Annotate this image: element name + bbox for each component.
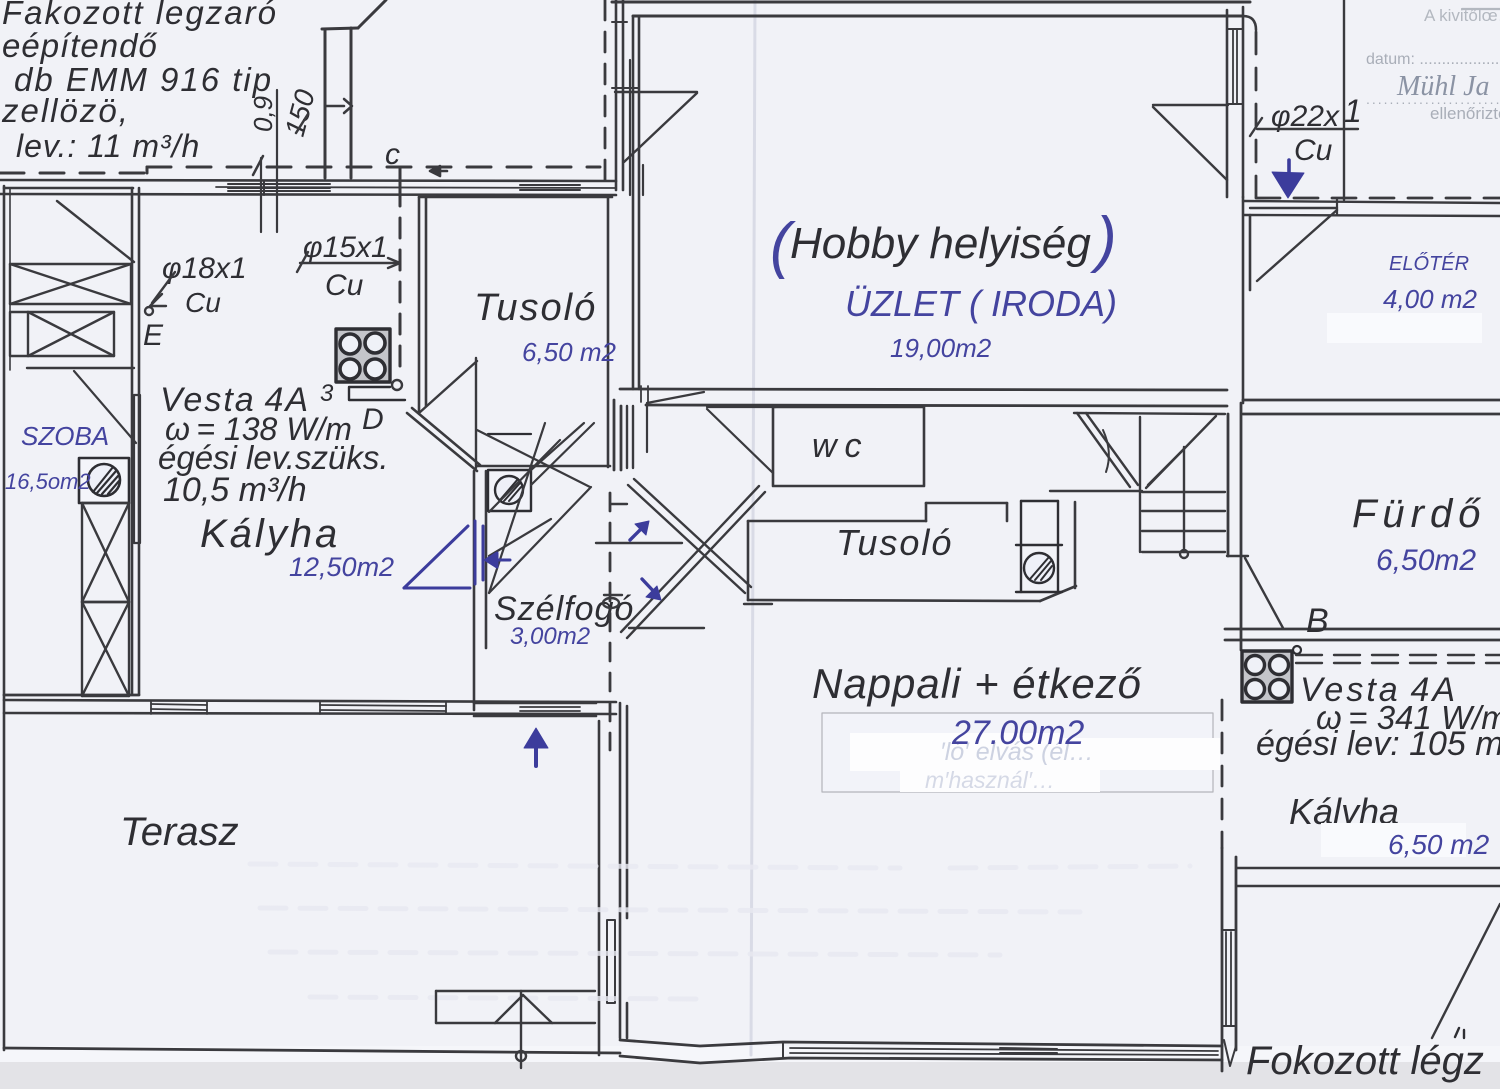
svg-text:6,50m2: 6,50m2	[1376, 544, 1476, 577]
svg-text:10,5 m³/h: 10,5 m³/h	[163, 471, 307, 509]
svg-text:3,00m2: 3,00m2	[510, 623, 590, 650]
svg-text:B: B	[1306, 602, 1329, 640]
svg-text:Cu: Cu	[185, 287, 221, 318]
svg-text:16,5om2: 16,5om2	[5, 469, 91, 494]
svg-text:Nappali + étkező: Nappali + étkező	[812, 660, 1142, 707]
svg-text:6,50 m2: 6,50 m2	[522, 337, 616, 367]
svg-text:4,00 m2: 4,00 m2	[1383, 284, 1477, 314]
svg-text:Tusoló: Tusoló	[836, 522, 953, 563]
svg-text:wc: wc	[812, 427, 870, 465]
svg-text:φ15x1: φ15x1	[303, 231, 388, 264]
svg-text:3: 3	[320, 380, 334, 407]
svg-text:SZOBA: SZOBA	[21, 421, 109, 451]
svg-text:c: c	[385, 138, 400, 171]
svg-text:Terasz: Terasz	[120, 810, 239, 854]
svg-text:lev.: 11 m³/h: lev.: 11 m³/h	[16, 128, 200, 164]
svg-text:égési lev: 105 m: égési lev: 105 m	[1256, 725, 1500, 763]
svg-text:A kivitőlœ…: A kivitőlœ…	[1424, 6, 1500, 25]
svg-text:ellenőrizte: ellenőrizte	[1430, 104, 1500, 123]
svg-text:Cu: Cu	[325, 269, 364, 302]
svg-text:Fokozott légz: Fokozott légz	[1246, 1039, 1484, 1083]
svg-text:Tusoló: Tusoló	[474, 287, 597, 329]
svg-text:Kályha: Kályha	[200, 512, 340, 556]
svg-text:Fürdő: Fürdő	[1352, 492, 1487, 536]
svg-text:6,50 m2: 6,50 m2	[1388, 829, 1490, 860]
svg-text:Hobby helyiség: Hobby helyiség	[790, 219, 1091, 268]
svg-text:ÜZLET ( IRODA): ÜZLET ( IRODA)	[845, 283, 1117, 324]
svg-text:zellözö,: zellözö,	[1, 92, 130, 129]
svg-text:φ18x1: φ18x1	[162, 252, 247, 285]
svg-text:Cu: Cu	[1294, 134, 1333, 167]
svg-text:ELŐTÉR: ELŐTÉR	[1389, 252, 1469, 275]
svg-text:12,50m2: 12,50m2	[289, 552, 394, 582]
svg-text:E: E	[143, 319, 164, 352]
svg-text:1: 1	[1344, 93, 1362, 129]
svg-text:27.00m2: 27.00m2	[951, 714, 1084, 752]
svg-text:D: D	[362, 403, 384, 436]
svg-text:eépítendő: eépítendő	[2, 27, 158, 64]
svg-text:m′használ′…: m′használ′…	[925, 767, 1055, 793]
svg-text:0,9: 0,9	[248, 96, 278, 132]
svg-text:19,00m2: 19,00m2	[890, 333, 992, 363]
svg-text:datum: .......................: datum: .......................	[1366, 51, 1500, 68]
